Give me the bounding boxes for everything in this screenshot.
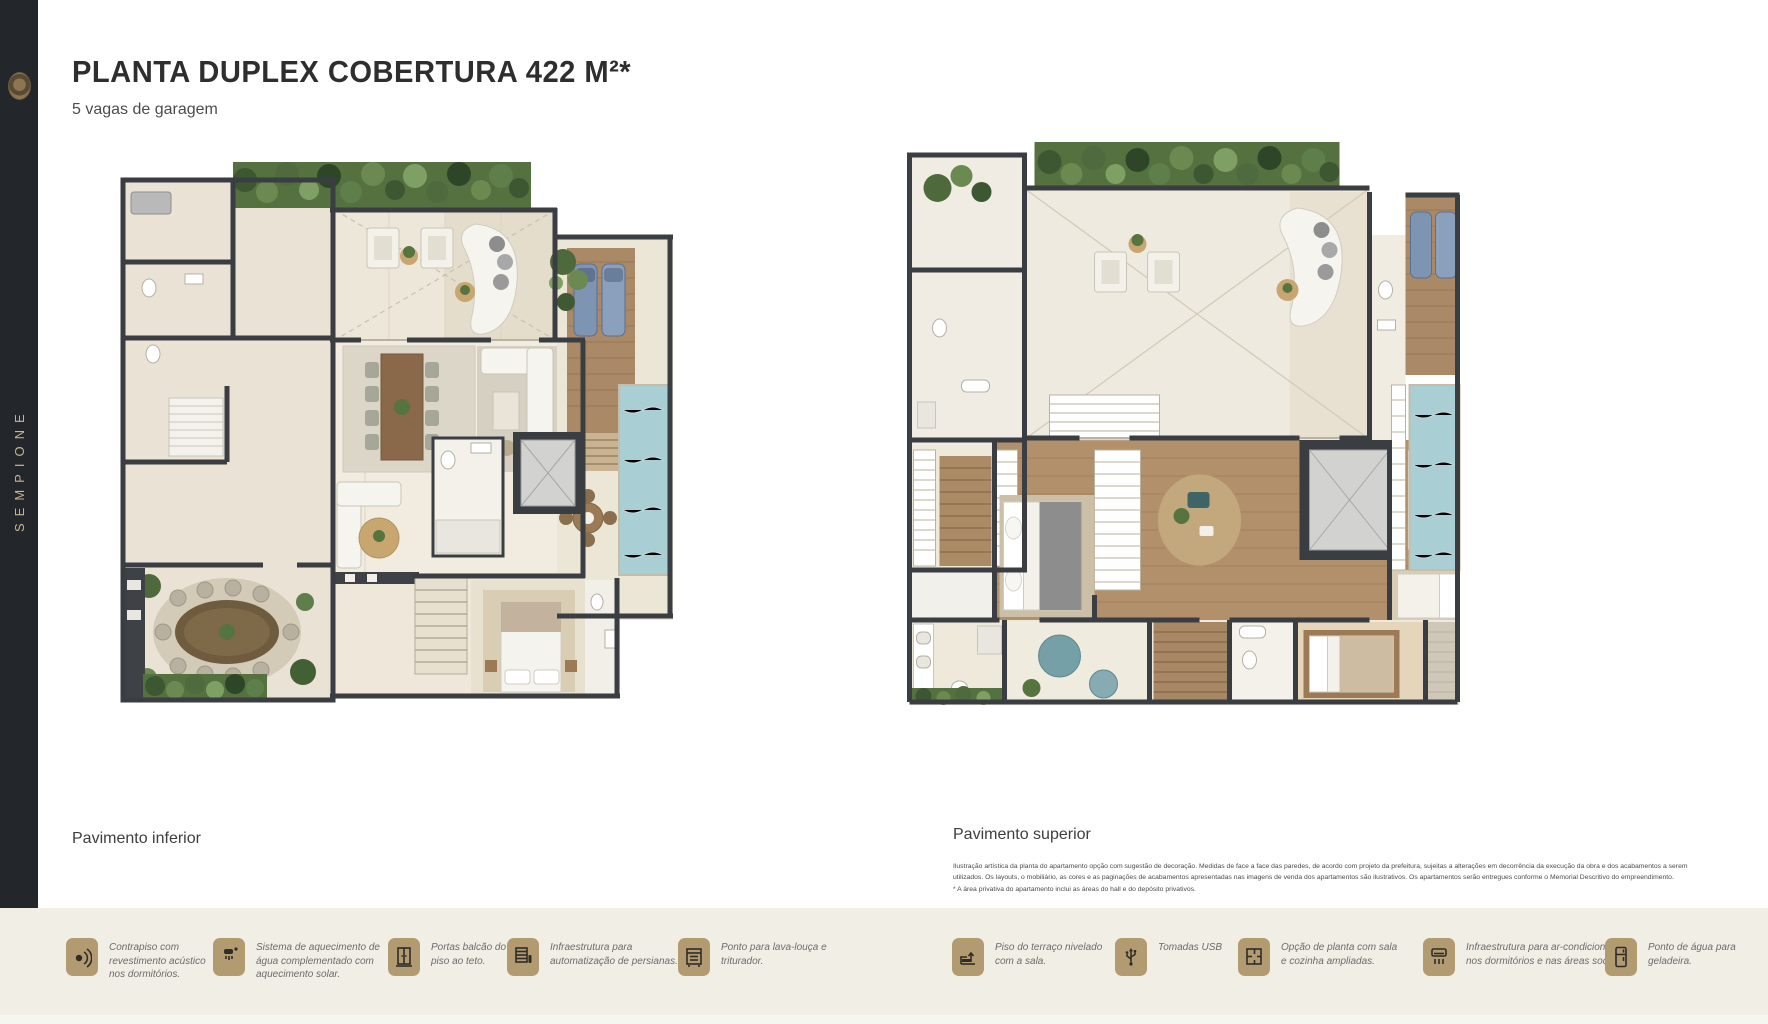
feature-terrace-level: Piso do terraço nivelado com a sala. <box>952 938 1103 976</box>
legal-disclaimer: Ilustração artística da planta do aparta… <box>953 862 1695 896</box>
disclaimer-note: * A área privativa do apartamento inclui… <box>953 885 1695 896</box>
brand-name: SEMPIONE <box>12 330 28 610</box>
feature-acoustic-floor: Contrapiso com revestimento acústico nos… <box>66 938 221 982</box>
feature-label: Ponto de água para geladeira. <box>1648 938 1744 968</box>
feature-floor-to-ceiling-doors: Portas balcão do piso ao teto. <box>388 938 523 976</box>
stairs <box>415 578 467 674</box>
bathroom-center <box>433 438 503 556</box>
master-bedroom <box>1000 495 1095 617</box>
hedge-top <box>233 162 531 208</box>
feature-label: Sistema de aquecimento de água complemen… <box>256 938 394 982</box>
fridge-water-icon <box>1605 938 1637 976</box>
feature-solar-water: Sistema de aquecimento de água complemen… <box>213 938 394 982</box>
floor-to-ceiling-doors-icon <box>388 938 420 976</box>
feature-expanded-plan: Opção de planta com sala e cozinha ampli… <box>1238 938 1399 976</box>
floor-plan-superior-image <box>898 140 1466 705</box>
feature-fridge-water: Ponto de água para geladeira. <box>1605 938 1744 976</box>
floor-plan-inferior-image <box>115 140 685 705</box>
pool <box>619 385 669 575</box>
feature-label: Opção de planta com sala e cozinha ampli… <box>1281 938 1399 968</box>
hedge-bottom <box>143 674 267 700</box>
bedroom-right <box>1392 570 1460 620</box>
usb-outlets-icon <box>1115 938 1147 976</box>
feature-air-conditioning: Infraestrutura para ar-condicionado nos … <box>1423 938 1634 976</box>
feature-usb-outlets: Tomadas USB <box>1115 938 1242 976</box>
feature-dishwasher: Ponto para lava-louça e triturador. <box>678 938 839 976</box>
feature-label: Tomadas USB <box>1158 938 1242 955</box>
features-footer: Contrapiso com revestimento acústico nos… <box>0 908 1768 1024</box>
bathroom-center-sup <box>1232 622 1294 702</box>
plan-label-inferior: Pavimento inferior <box>72 830 201 848</box>
acoustic-floor-icon <box>66 938 98 976</box>
bathroom-bedroom <box>585 580 619 695</box>
plan-label-superior: Pavimento superior <box>953 826 1091 844</box>
hedge-top-sup <box>1035 142 1340 190</box>
feature-label: Piso do terraço nivelado com a sala. <box>995 938 1103 968</box>
terrace-level-icon <box>952 938 984 976</box>
page-subtitle: 5 vagas de garagem <box>72 101 218 119</box>
brand-emblem-icon <box>8 72 31 100</box>
lounge-poufs <box>1008 622 1150 702</box>
bedroom-bottom <box>1296 622 1424 702</box>
stairs-down <box>1154 622 1228 702</box>
expanded-plan-icon <box>1238 938 1270 976</box>
feature-label: Infraestrutura para automatização de per… <box>550 938 688 968</box>
page-title: PLANTA DUPLEX COBERTURA 422 M²* <box>72 54 631 90</box>
solar-water-heating-icon <box>213 938 245 976</box>
dishwasher-icon <box>678 938 710 976</box>
feature-blinds-automation: Infraestrutura para automatização de per… <box>507 938 688 976</box>
footer-bottom-strip <box>0 1015 1768 1024</box>
disclaimer-text: Ilustração artística da planta do aparta… <box>953 863 1688 881</box>
feature-label: Contrapiso com revestimento acústico nos… <box>109 938 221 982</box>
hall-rug <box>1158 474 1242 566</box>
elevator <box>513 432 583 514</box>
blinds-automation-icon <box>507 938 539 976</box>
mosaic-bath <box>1426 622 1460 702</box>
brochure-page: SEMPIONE PLANTA DUPLEX COBERTURA 422 M²*… <box>0 0 1768 1024</box>
feature-label: Ponto para lava-louça e triturador. <box>721 938 839 968</box>
brand-sidebar: SEMPIONE <box>0 0 38 1024</box>
air-conditioning-icon <box>1423 938 1455 976</box>
bedroom-inferior <box>471 580 585 695</box>
